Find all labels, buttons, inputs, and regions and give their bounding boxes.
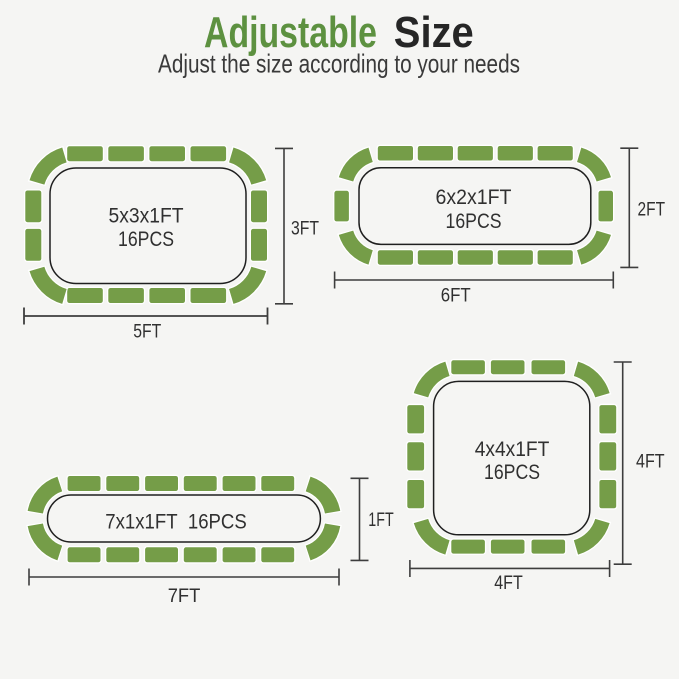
svg-text:2FT: 2FT	[638, 198, 666, 220]
svg-text:6x2x1FT: 6x2x1FT	[436, 186, 512, 209]
svg-text:4x4x1FT: 4x4x1FT	[475, 438, 550, 461]
svg-text:4FT: 4FT	[494, 572, 523, 594]
svg-text:6FT: 6FT	[441, 284, 471, 306]
svg-text:7FT: 7FT	[168, 585, 201, 607]
svg-text:16PCS: 16PCS	[118, 228, 174, 251]
svg-text:16PCS: 16PCS	[484, 461, 540, 484]
svg-text:5x3x1FT: 5x3x1FT	[109, 205, 184, 228]
svg-text:16PCS: 16PCS	[446, 210, 502, 233]
svg-text:5FT: 5FT	[133, 320, 161, 342]
svg-text:7x1x1FT 16PCS: 7x1x1FT 16PCS	[105, 511, 247, 534]
svg-text:Adjust the size according to y: Adjust the size according to your needs	[158, 49, 520, 79]
svg-text:1FT: 1FT	[368, 509, 393, 531]
svg-text:4FT: 4FT	[636, 451, 665, 473]
svg-text:3FT: 3FT	[291, 218, 319, 240]
